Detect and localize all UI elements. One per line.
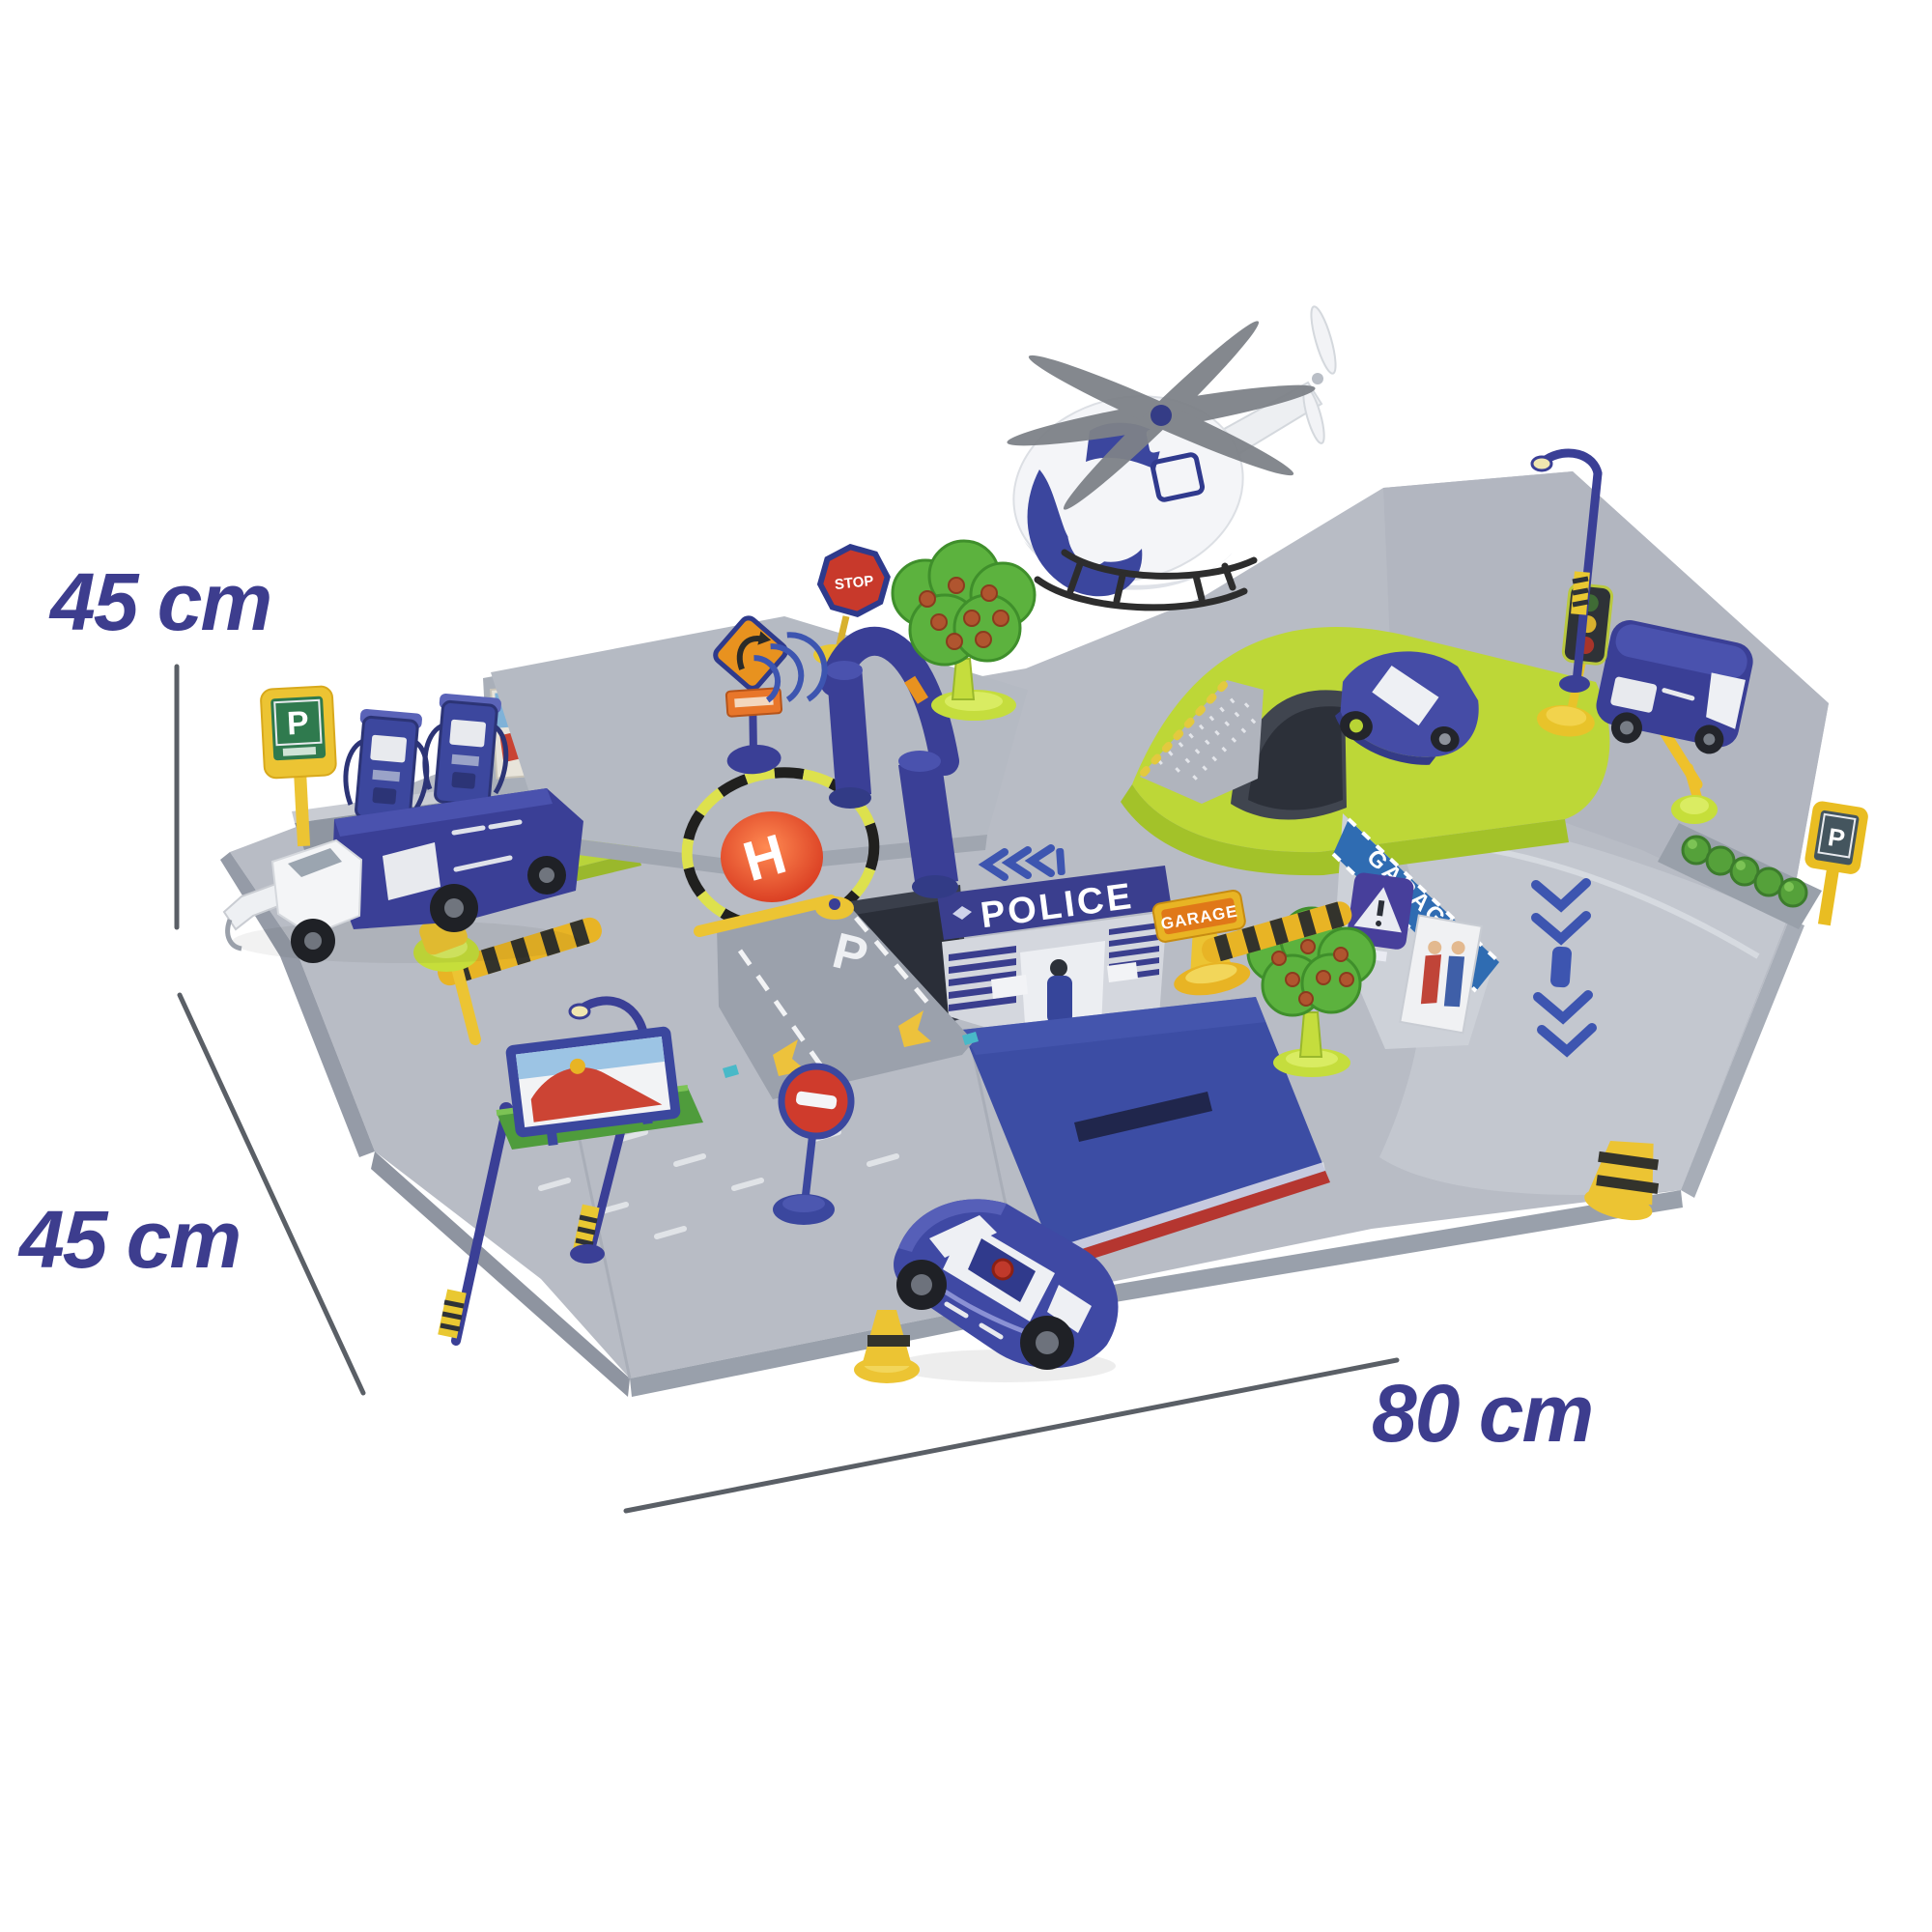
parking-sign-left-letter: P — [286, 704, 310, 742]
depth-label: 45 cm — [17, 1194, 240, 1285]
tow-truck — [224, 788, 583, 963]
fuel-pump-1 — [342, 708, 432, 823]
product-image: 45 cm 45 cm 80 cm — [0, 0, 1932, 1932]
width-dimension-line — [626, 1360, 1397, 1511]
tail-rotor — [1299, 304, 1341, 445]
width-label: 80 cm — [1372, 1368, 1592, 1459]
height-label: 45 cm — [48, 556, 270, 647]
